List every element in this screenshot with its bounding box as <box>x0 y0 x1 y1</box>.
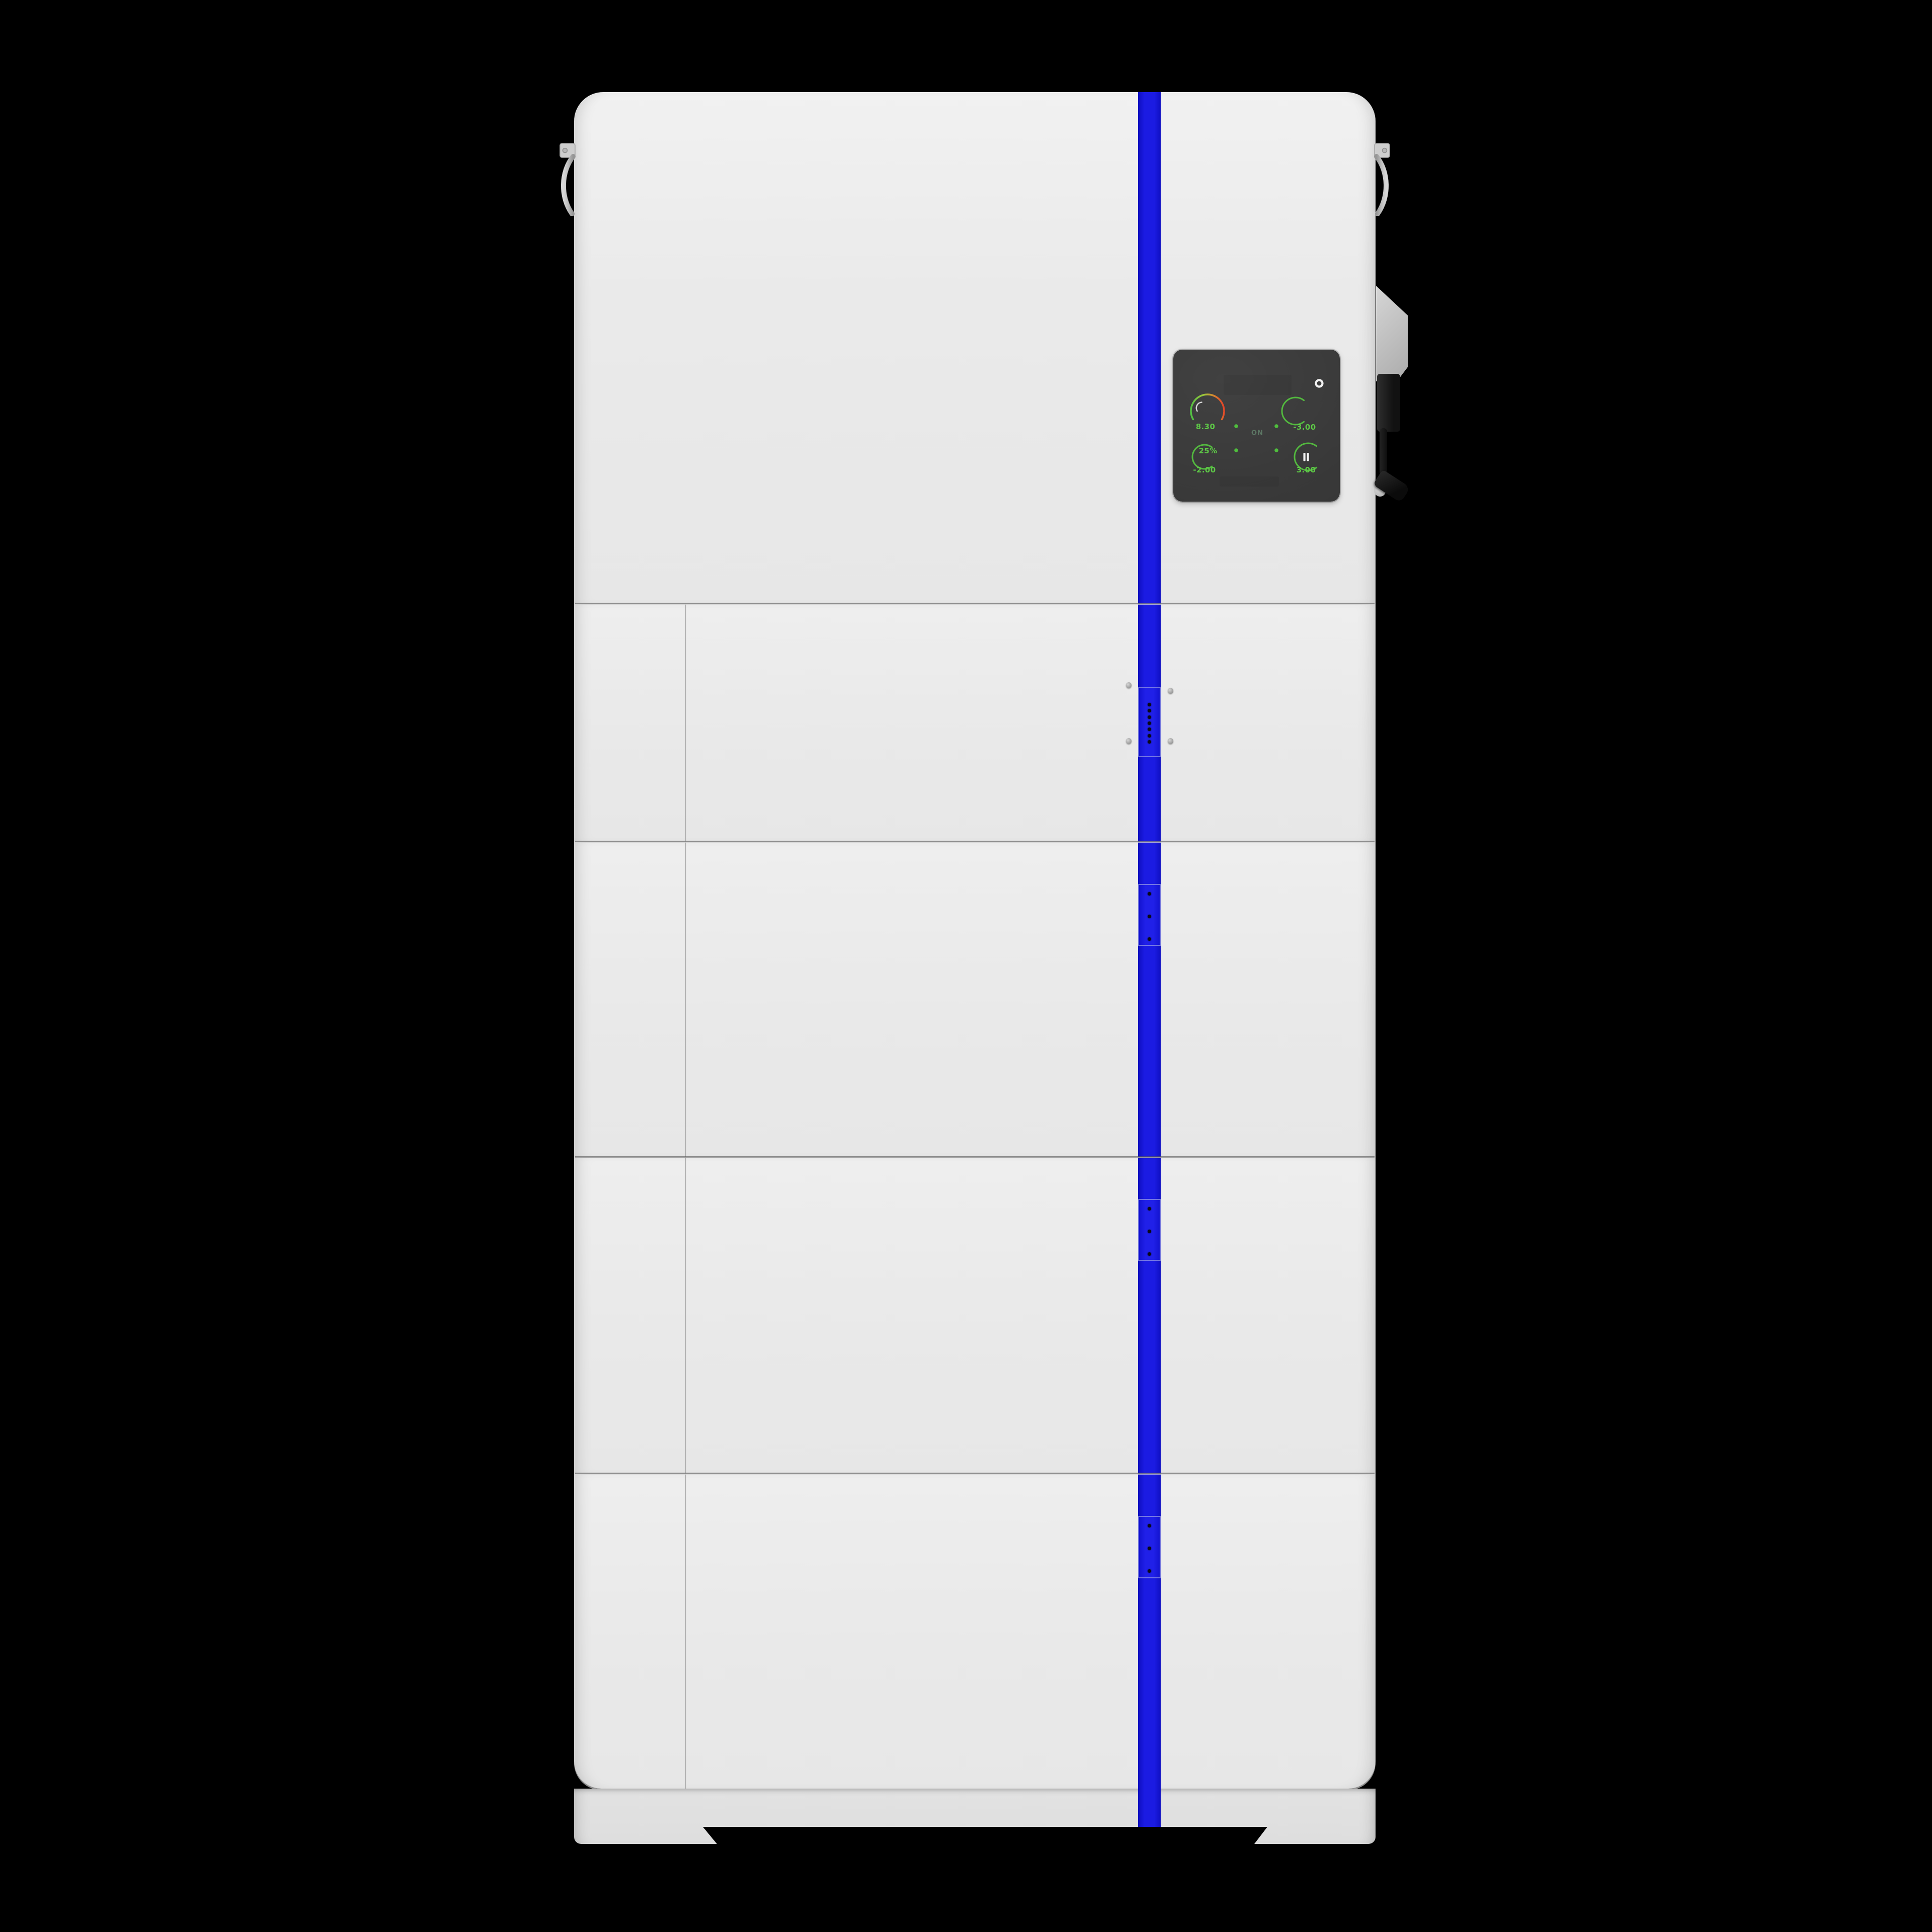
screw-icon <box>1126 738 1132 744</box>
pause-icon <box>1304 453 1306 461</box>
seam-module1-module2 <box>575 841 1375 843</box>
seam-module2-module3 <box>575 1156 1375 1158</box>
status-led <box>1148 915 1151 918</box>
grid-gauge-arc <box>1282 397 1304 425</box>
pv-power-value: 8.30 <box>1196 422 1216 431</box>
battery-power-value: -2.00 <box>1193 465 1216 474</box>
battery-module-3 <box>574 1157 1376 1474</box>
side-breaker-box <box>1377 374 1400 432</box>
side-heatsink-bracket <box>1376 286 1408 381</box>
seam-module3-module4 <box>575 1473 1375 1475</box>
status-led <box>1148 1547 1151 1550</box>
battery-module-1 <box>574 604 1376 842</box>
handle-rod <box>1377 156 1386 214</box>
stripe-connector-plate <box>1138 687 1161 757</box>
status-led <box>1148 728 1151 731</box>
pause-icon <box>1307 453 1309 461</box>
stripe-connector-plate <box>1138 884 1161 946</box>
status-text: ON <box>1251 430 1263 437</box>
status-led <box>1148 715 1151 719</box>
status-led <box>1148 734 1151 738</box>
status-led <box>1148 1230 1151 1233</box>
front-panel-inset-line <box>685 604 686 1789</box>
flow-dot <box>1274 448 1278 452</box>
dc-switch-lever[interactable] <box>1373 469 1411 503</box>
battery-module-4 <box>574 1474 1376 1789</box>
flow-dot <box>1274 424 1278 428</box>
seam-inverter-module1 <box>575 603 1375 605</box>
battery-soc-value: 25% <box>1198 446 1217 455</box>
flow-dot <box>1234 424 1238 428</box>
side-cable <box>1380 428 1387 475</box>
energy-storage-unit: 8.30 -3.00 25% -2.00 3.00 ON <box>574 92 1376 1844</box>
status-led <box>1148 1569 1151 1573</box>
screw-icon <box>1383 148 1387 153</box>
status-led <box>1148 709 1151 712</box>
handle-rod <box>563 156 573 214</box>
stripe-connector-plate <box>1138 1199 1161 1261</box>
grid-power-value: -3.00 <box>1293 423 1316 432</box>
screw-icon <box>1168 688 1173 694</box>
screw-icon <box>563 148 568 153</box>
status-display: 8.30 -3.00 25% -2.00 3.00 ON <box>1173 350 1340 502</box>
status-led <box>1148 703 1151 706</box>
stripe-connector-plate <box>1138 1516 1161 1578</box>
gauge-highlight-icon <box>1196 403 1202 412</box>
inverter-section <box>574 92 1376 604</box>
status-led <box>1148 892 1151 896</box>
flow-dot <box>1234 448 1238 452</box>
power-ring-icon <box>1316 380 1323 387</box>
battery-module-2 <box>574 842 1376 1157</box>
screw-icon <box>1126 682 1132 688</box>
scene-background: 8.30 -3.00 25% -2.00 3.00 ON <box>0 0 1932 1932</box>
status-led <box>1148 740 1151 744</box>
status-led <box>1148 1207 1151 1211</box>
load-power-value: 3.00 <box>1297 465 1316 474</box>
lifting-handle-right <box>1370 140 1393 216</box>
lifting-handle-left <box>557 140 580 216</box>
status-led <box>1148 1252 1151 1256</box>
status-led <box>1148 1524 1151 1527</box>
status-led <box>1148 937 1151 941</box>
screw-icon <box>1168 738 1173 744</box>
status-led <box>1148 721 1151 725</box>
